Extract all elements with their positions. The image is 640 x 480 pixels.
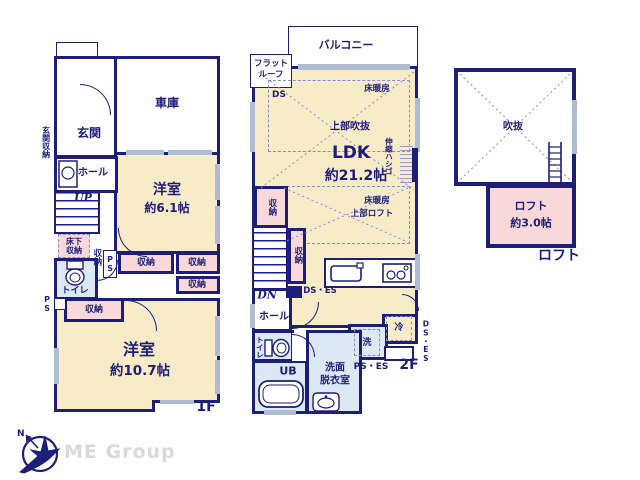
floor-heating-label-top: 床暖房 xyxy=(364,85,390,95)
bedroom107-name: 洋室 xyxy=(123,341,155,359)
up-label: UP xyxy=(74,193,92,206)
toilet-icon-1f xyxy=(61,261,89,287)
entrance-storage-label: 玄関収納 xyxy=(41,126,50,158)
ds-es-label-kitchen: DS・ES xyxy=(303,287,337,297)
ps-label-left: PS xyxy=(42,295,51,313)
window-mark xyxy=(215,360,220,394)
ds-es-label-side: DS・ES xyxy=(421,319,430,363)
ps-shaft-1f-left xyxy=(54,298,66,310)
floor1-label: 1F xyxy=(196,399,215,415)
window-mark xyxy=(264,410,296,415)
fridge-label: 冷 xyxy=(394,323,403,333)
toilet-label-1f: トイレ xyxy=(61,286,88,296)
storage-2f-lower-label: 収納 xyxy=(292,247,302,264)
toilet-label-2f: トイレ xyxy=(255,336,264,359)
hand-basin-icon xyxy=(58,160,78,188)
ladder-wall-segment xyxy=(412,148,418,182)
bedroom107-size: 約10.7帖 xyxy=(110,364,170,380)
floor2-label: 2F xyxy=(399,357,418,373)
kitchen-sink-icon xyxy=(330,263,366,283)
toilet-icon-2f xyxy=(265,336,291,360)
balcony-label: バルコニー xyxy=(319,40,374,53)
floor-heating-label-bottom: 床暖房 xyxy=(364,197,390,207)
flat-roof-label-1: フラット xyxy=(254,60,288,70)
window-mark xyxy=(215,206,220,244)
ldk-size-label: 約21.2帖 xyxy=(325,168,388,184)
unit-bath-label: UB xyxy=(279,366,296,379)
ps-es-label: PS・ES xyxy=(354,362,389,372)
loft-above-label: 上部ロフト xyxy=(351,210,394,220)
bedroom61-size: 約6.1帖 xyxy=(144,202,189,216)
stairs-down xyxy=(252,222,288,290)
hall-label-2f: ホール xyxy=(259,311,289,323)
storage-label-v: 収納 xyxy=(91,249,101,266)
window-mark xyxy=(215,316,220,356)
storage-label-a: 収納 xyxy=(137,258,155,268)
window-mark xyxy=(168,150,212,155)
storage-label-d: 収納 xyxy=(85,305,103,315)
washbasin-icon xyxy=(312,392,340,412)
storage-label-b: 収納 xyxy=(188,258,206,268)
flat-roof-label-2: ルーフ xyxy=(259,71,284,81)
window-mark xyxy=(250,304,255,328)
void-label: 吹抜 xyxy=(503,121,523,133)
stove-icon xyxy=(382,263,412,283)
loft-ladder-icon xyxy=(545,142,565,186)
washer-label: 洗 xyxy=(362,338,371,348)
ldk-name-label: LDK xyxy=(332,144,370,164)
dn-label: DN xyxy=(257,290,277,303)
window-mark xyxy=(215,164,220,200)
underfloor-storage-label: 床下収納 xyxy=(64,237,83,255)
storage-label-c: 収納 xyxy=(188,280,206,290)
company-logo-text: ME Group xyxy=(64,441,176,463)
ds-label: DS xyxy=(272,90,286,100)
ladder-label: 伸縮ハシゴ xyxy=(384,137,393,175)
window-mark xyxy=(298,64,410,70)
open-above-label: 上部吹抜 xyxy=(330,121,370,133)
window-mark xyxy=(54,348,59,384)
loft-floor-label: ロフト xyxy=(538,248,580,264)
compass-north-icon: N xyxy=(14,426,64,478)
washroom-label-1: 洗面 xyxy=(325,362,345,374)
hall-label-1f: ホール xyxy=(78,167,108,179)
garage-label: 車庫 xyxy=(155,97,179,111)
window-mark xyxy=(415,254,420,290)
washroom-label-2: 脱衣室 xyxy=(320,375,350,387)
loft-size-label: 約3.0帖 xyxy=(510,218,552,231)
floor-plan-page: 車庫 玄関 玄関収納 ホール UP 床下収納 収納 PS トイレ PS 収納 収… xyxy=(0,0,640,480)
bathtub-icon xyxy=(258,380,304,408)
window-mark xyxy=(250,102,255,152)
ps-label: PS xyxy=(105,255,114,273)
window-mark xyxy=(572,100,577,154)
loft-name-label: ロフト xyxy=(515,201,548,214)
bedroom61-name: 洋室 xyxy=(153,182,181,198)
entrance-label: 玄関 xyxy=(77,127,101,141)
ds-es-shaft xyxy=(286,286,302,298)
north-letter: N xyxy=(17,429,25,439)
window-mark xyxy=(160,400,194,404)
window-mark xyxy=(126,150,164,155)
storage-2f-upper-label: 収納 xyxy=(266,199,276,216)
window-mark xyxy=(415,98,420,152)
